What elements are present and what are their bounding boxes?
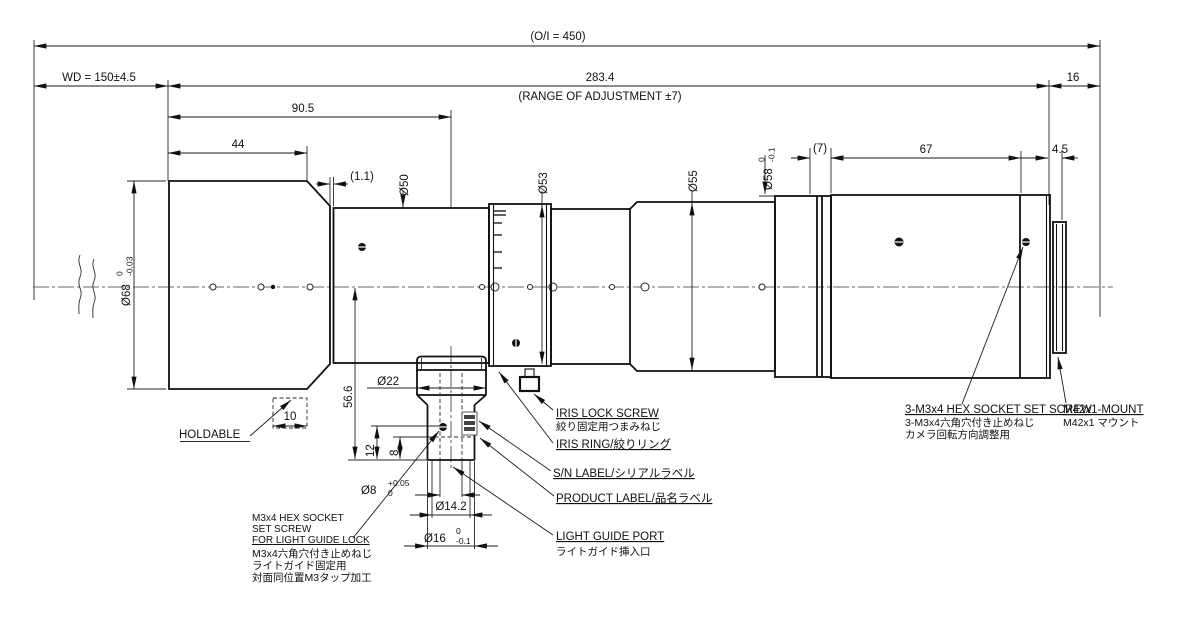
label-light-guide-port-jp: ライトガイド挿入口	[556, 545, 651, 558]
dim-diameter-58: Ø58 0 -0.1	[757, 147, 777, 190]
dim-4-5: 4.5	[1052, 144, 1068, 156]
dim-diameter-22: Ø22	[377, 376, 399, 388]
svg-text:Ø16: Ø16	[424, 533, 446, 545]
dim-range-of-adjustment: (RANGE OF ADJUSTMENT ±7)	[518, 91, 681, 103]
svg-text:-0.03: -0.03	[125, 256, 135, 276]
front-barrel	[169, 181, 330, 389]
svg-text:0: 0	[388, 488, 393, 498]
svg-text:-0.1: -0.1	[456, 536, 471, 546]
label-holdable: HOLDABLE	[179, 429, 241, 441]
svg-text:0: 0	[115, 271, 125, 276]
label-mount-screw-jp2: カメラ回転方向調整用	[905, 428, 1010, 441]
annotation-texts: HOLDABLE M3x4 HEX SOCKET SET SCREW FOR L…	[179, 404, 1144, 584]
label-sn: S/N LABEL/シリアルラベル	[553, 468, 695, 480]
svg-text:0: 0	[757, 157, 767, 162]
dim-10: 10	[284, 411, 297, 423]
label-product: PRODUCT LABEL/品名ラベル	[556, 491, 712, 505]
dim-diameter-16: Ø16 0 -0.1	[424, 526, 471, 546]
label-iris-ring: IRIS RING/絞りリング	[556, 437, 672, 451]
light-guide-port	[417, 357, 486, 461]
iris-lock-screw	[525, 369, 534, 377]
mid-barrel-50	[334, 208, 490, 363]
svg-text:+0.05: +0.05	[388, 478, 410, 488]
label-iris-lock-screw-jp: 絞り固定用つまみねじ	[556, 420, 661, 433]
dim-1-1: (1.1)	[350, 171, 374, 183]
dim-90-5: 90.5	[292, 103, 314, 115]
set-screws	[358, 238, 1030, 432]
barrel-55	[630, 202, 775, 371]
dim-diameter-14-2: Ø14.2	[435, 501, 466, 513]
dim-44: 44	[232, 139, 245, 151]
dim-7: (7)	[813, 143, 827, 155]
label-lg-screw-line3: FOR LIGHT GUIDE LOCK	[252, 535, 370, 546]
dim-56-6: 56.6	[343, 386, 355, 408]
label-m42-mount-jp: M42x1 マウント	[1063, 417, 1139, 429]
iris-scale-ticks	[494, 211, 506, 268]
mid-barrel-2	[551, 209, 630, 364]
dim-diameter-50: Ø50	[399, 174, 411, 196]
label-light-guide-port: LIGHT GUIDE PORT	[556, 531, 664, 543]
rear-barrel	[831, 195, 1050, 378]
dim-67: 67	[920, 144, 933, 156]
svg-text:8: 8	[389, 450, 401, 456]
svg-text:Ø50: Ø50	[399, 174, 411, 196]
serial-label-plate	[462, 412, 477, 435]
label-m42-mount: M42x1-MOUNT	[1063, 404, 1144, 416]
dim-diameter-53: Ø53	[538, 172, 550, 194]
svg-text:Ø8: Ø8	[361, 485, 376, 497]
dim-12: 12	[365, 444, 377, 457]
svg-text:56.6: 56.6	[343, 386, 355, 408]
label-mount-screw-jp1: 3-M3x4六角穴付き止めねじ	[905, 416, 1035, 429]
label-iris-lock-screw: IRIS LOCK SCREW	[556, 408, 659, 420]
lens-technical-drawing-page: (O/I = 450) WD = 150±4.5 283.4 (RANGE OF…	[0, 0, 1178, 621]
dim-total-length: 283.4	[586, 72, 615, 84]
dim-diameter-8: Ø8 +0.05 0	[361, 478, 410, 498]
label-lg-screw-line1: M3x4 HEX SOCKET	[252, 513, 344, 524]
m42-mount	[1053, 222, 1066, 353]
svg-text:-0.1: -0.1	[767, 147, 777, 162]
svg-text:Ø55: Ø55	[688, 170, 700, 192]
dim-wd: WD = 150±4.5	[62, 72, 136, 84]
dim-diameter-55: Ø55	[688, 170, 700, 192]
svg-text:Ø53: Ø53	[538, 172, 550, 194]
label-lg-screw-line4: M3x4六角穴付き止めねじ	[252, 547, 372, 560]
dim-diameter-68: Ø68 0 -0.03	[115, 256, 135, 306]
lens-technical-drawing: (O/I = 450) WD = 150±4.5 283.4 (RANGE OF…	[0, 0, 1178, 621]
label-lg-screw-line6: 対面同位置M3タップ加工	[252, 571, 372, 584]
svg-text:Ø68: Ø68	[121, 284, 133, 306]
dim-oi: (O/I = 450)	[530, 31, 585, 43]
svg-text:0: 0	[456, 526, 461, 536]
dim-8: 8	[389, 450, 401, 456]
label-lg-screw-line2: SET SCREW	[252, 524, 312, 535]
dim-16: 16	[1067, 72, 1080, 84]
svg-text:12: 12	[365, 444, 377, 457]
break-symbol	[79, 255, 95, 318]
label-lg-screw-line5: ライトガイド固定用	[252, 559, 347, 572]
svg-text:Ø58: Ø58	[763, 168, 775, 190]
